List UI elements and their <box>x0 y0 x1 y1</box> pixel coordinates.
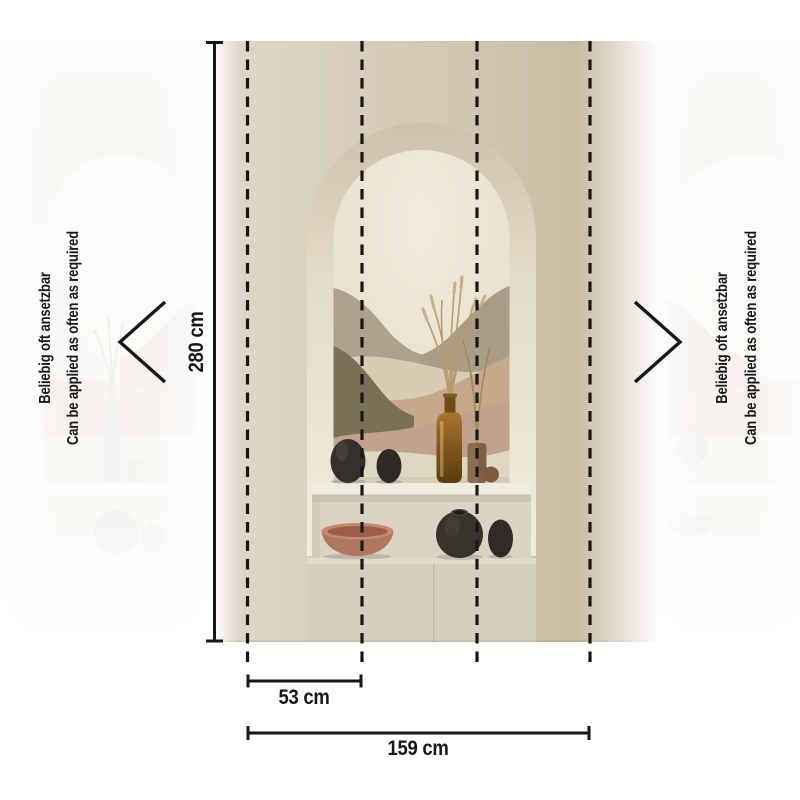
repeat-note-en-right: Can be applied as often as required <box>743 231 761 445</box>
dark-small-vase <box>488 520 513 558</box>
panel-width-label: 53 cm <box>278 686 329 710</box>
fade-right-bottom <box>648 500 800 642</box>
product-dimension-diagram: Beliebig oft ansetzbar Can be applied as… <box>0 0 800 800</box>
repeat-note-de-right: Beliebig oft ansetzbar <box>714 272 732 404</box>
shelf <box>312 483 531 496</box>
fade-left-top <box>0 41 215 96</box>
dark-oval-vase <box>377 449 402 483</box>
fade-left-bottom <box>0 500 215 642</box>
dark-egg-vase <box>331 439 366 483</box>
total-width-label: 159 cm <box>387 737 448 761</box>
repeat-note-en-left: Can be applied as often as required <box>65 231 83 445</box>
plinth-face <box>307 564 536 642</box>
small-gourd <box>483 467 499 483</box>
fade-right-top <box>648 41 800 96</box>
height-dimension-label: 280 cm <box>185 311 209 372</box>
wallpaper-preview-image <box>0 0 800 800</box>
repeat-note-de-left: Beliebig oft ansetzbar <box>37 272 55 404</box>
